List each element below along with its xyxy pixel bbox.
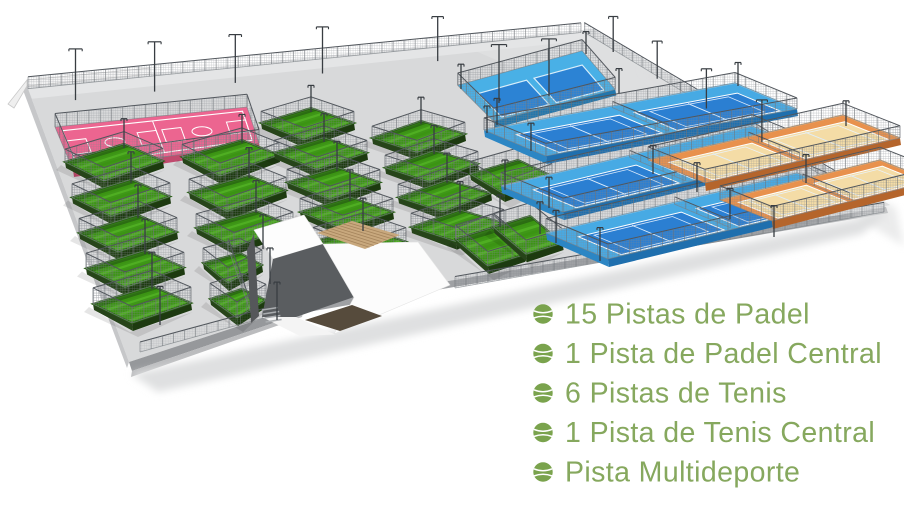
- svg-text:15 Pistas de Padel: 15 Pistas de Padel: [565, 299, 810, 331]
- svg-text:6 Pistas de Tenis: 6 Pistas de Tenis: [565, 378, 787, 410]
- svg-text:1 Pista de Padel Central: 1 Pista de Padel Central: [565, 338, 882, 370]
- svg-text:1 Pista de Tenis Central: 1 Pista de Tenis Central: [565, 417, 875, 449]
- svg-text:Pista Multideporte: Pista Multideporte: [565, 457, 800, 489]
